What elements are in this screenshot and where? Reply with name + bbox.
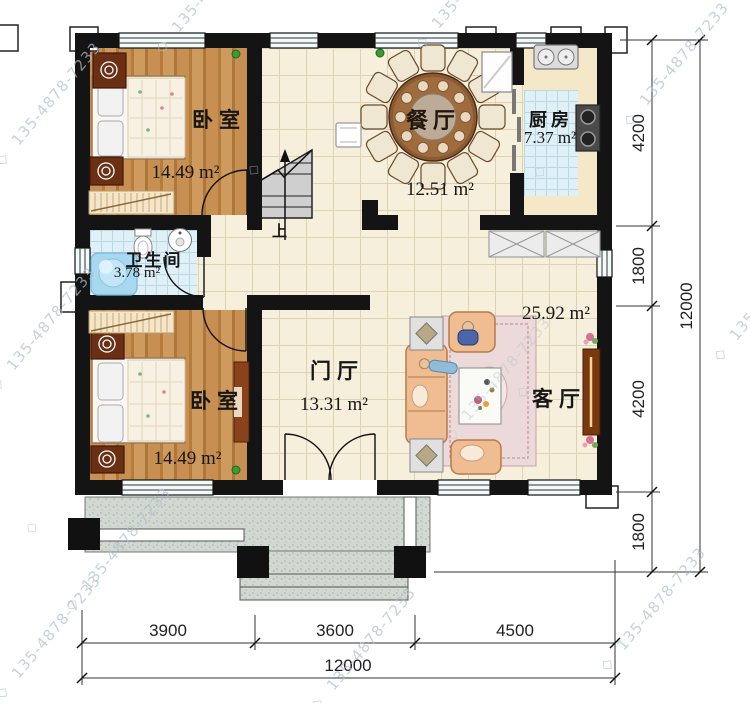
stairs-up-label: 上	[272, 220, 287, 241]
label-dining-area: 12.51 m²	[396, 179, 484, 201]
label-bedroom-bottom-area: 14.49 m²	[140, 448, 235, 470]
label-foyer-name: 门厅	[303, 355, 371, 385]
dim-bottom-2: 3600	[300, 621, 370, 639]
label-kitchen-area: 7.37 m²	[512, 128, 588, 148]
dim-bottom-1: 3900	[133, 621, 203, 639]
label-foyer-area: 13.31 m²	[290, 394, 378, 416]
stairs-up-arrow	[280, 149, 290, 162]
dim-right-2: 1800	[629, 236, 647, 296]
hall-cabinet	[336, 123, 361, 147]
entry-door-left	[285, 434, 331, 480]
dim-right-total: 12000	[677, 276, 695, 336]
label-bathroom-area: 3.78 m²	[104, 265, 170, 282]
entry-door-right	[329, 434, 375, 480]
bed-bottom	[92, 358, 185, 443]
label-bedroom-top-area: 14.49 m²	[138, 162, 233, 184]
kitchen-sink	[534, 45, 578, 69]
label-bedroom-top-name: 卧室	[187, 104, 251, 134]
label-dining-name: 餐厅	[393, 103, 473, 135]
fridge	[482, 52, 512, 92]
dim-bottom-3: 4500	[480, 621, 550, 639]
storage-cabinets	[489, 231, 600, 257]
dim-right-3: 4200	[629, 369, 647, 429]
bedroom-bottom-door	[203, 308, 246, 351]
dim-right-4: 1800	[629, 502, 647, 562]
floor-plan: 卧室 14.49 m² 餐厅 12.51 m² 厨房 7.37 m² 卫生间 3…	[0, 0, 750, 703]
label-living-name: 客厅	[527, 383, 591, 413]
label-living-area: 25.92 m²	[510, 303, 602, 325]
label-bedroom-bottom-name: 卧室	[185, 385, 249, 415]
